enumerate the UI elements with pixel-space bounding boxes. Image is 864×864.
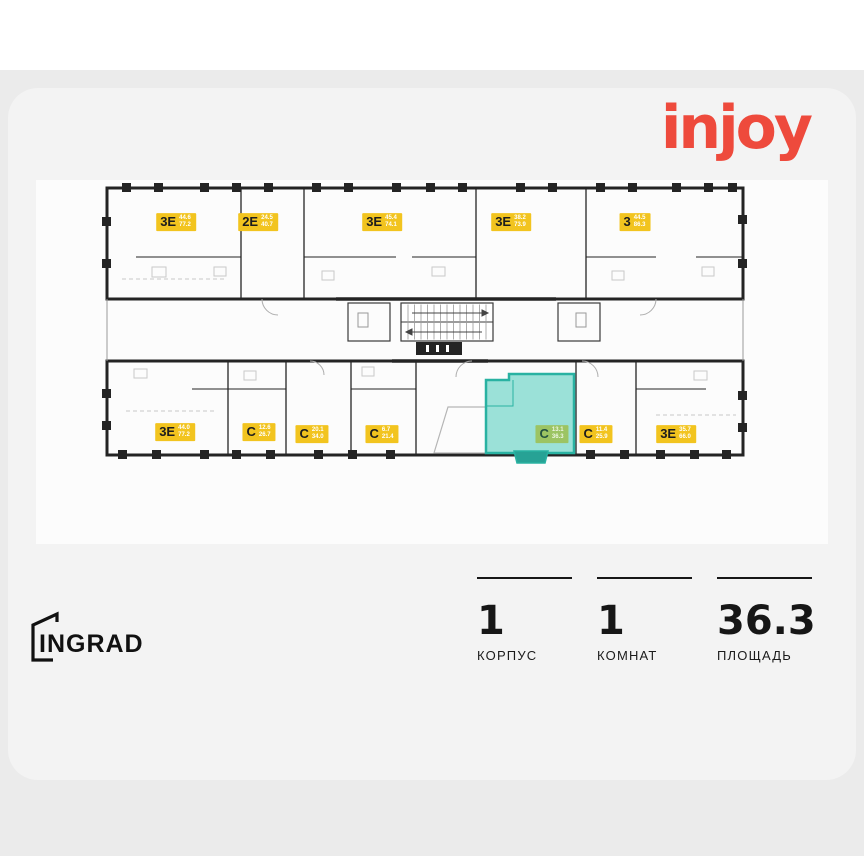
stat-label: КОМНАТ xyxy=(597,648,692,663)
unit-type: 3Е xyxy=(160,216,176,229)
unit-type: С xyxy=(583,428,592,441)
stat-ploshchad: 36.3 ПЛОЩАДЬ xyxy=(717,577,812,663)
highlighted-unit-label: С13.136.3 xyxy=(535,425,568,443)
listing-card: injoy xyxy=(8,88,856,780)
unit-type: С xyxy=(299,428,308,441)
unit-type: 3Е xyxy=(366,216,382,229)
unit-areas: 35.766.0 xyxy=(679,427,691,441)
stat-value: 1 xyxy=(597,601,692,641)
unit-label: 3Е44.677.2 xyxy=(156,213,196,231)
unit-label: 3Е35.766.0 xyxy=(656,425,696,443)
unit-label: С12.626.7 xyxy=(242,423,275,441)
stat-rule xyxy=(717,577,812,579)
unit-labels: 3Е44.677.22Е24.540.73Е45.474.13Е38.273.9… xyxy=(96,175,766,475)
unit-label: 2Е24.540.7 xyxy=(238,213,278,231)
unit-type: С xyxy=(369,428,378,441)
unit-type: 2Е xyxy=(242,216,258,229)
unit-label: 3Е44.077.2 xyxy=(155,423,195,441)
unit-label: С6.721.4 xyxy=(365,425,398,443)
unit-areas: 45.474.1 xyxy=(385,215,397,229)
stat-komnat: 1 КОМНАТ xyxy=(597,577,692,663)
stat-rule xyxy=(597,577,692,579)
stat-label: ПЛОЩАДЬ xyxy=(717,648,812,663)
unit-areas: 44.077.2 xyxy=(178,425,190,439)
unit-areas: 38.273.9 xyxy=(514,215,526,229)
unit-type: 3 xyxy=(624,216,631,229)
unit-type: С xyxy=(539,428,548,441)
injoy-logo: injoy xyxy=(661,92,810,164)
stat-rule xyxy=(477,577,572,579)
unit-areas: 24.540.7 xyxy=(261,215,273,229)
ingrad-logo-text: INGRAD xyxy=(39,630,144,658)
unit-areas: 13.136.3 xyxy=(552,427,564,441)
stat-label: КОРПУС xyxy=(477,648,572,663)
stat-value: 1 xyxy=(477,601,572,641)
unit-areas: 6.721.4 xyxy=(382,427,394,441)
unit-label: С20.134.0 xyxy=(295,425,328,443)
unit-type: 3Е xyxy=(660,428,676,441)
stat-korpus: 1 КОРПУС xyxy=(477,577,572,663)
unit-label: 344.586.3 xyxy=(620,213,651,231)
ingrad-logo: INGRAD xyxy=(28,608,144,671)
page: injoy xyxy=(0,0,864,864)
floorplan: 3Е44.677.22Е24.540.73Е45.474.13Е38.273.9… xyxy=(96,175,766,475)
unit-areas: 44.586.3 xyxy=(634,215,646,229)
unit-areas: 44.677.2 xyxy=(179,215,191,229)
stat-value: 36.3 xyxy=(717,601,812,641)
unit-areas: 20.134.0 xyxy=(312,427,324,441)
unit-label: С11.425.9 xyxy=(579,425,612,443)
stats-section: 1 КОРПУС 1 КОМНАТ 36.3 ПЛОЩАДЬ xyxy=(477,577,812,663)
unit-type: 3Е xyxy=(159,426,175,439)
unit-type: 3Е xyxy=(495,216,511,229)
unit-label: 3Е45.474.1 xyxy=(362,213,402,231)
unit-areas: 12.626.7 xyxy=(259,425,271,439)
unit-type: С xyxy=(246,426,255,439)
unit-areas: 11.425.9 xyxy=(596,427,608,441)
unit-label: 3Е38.273.9 xyxy=(491,213,531,231)
